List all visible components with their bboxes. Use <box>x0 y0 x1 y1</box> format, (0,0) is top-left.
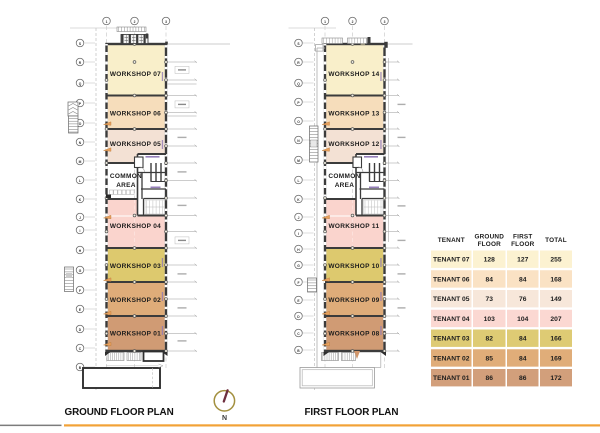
svg-text:GROUND FLOOR PLAN: GROUND FLOOR PLAN <box>65 407 174 418</box>
svg-text:3: 3 <box>384 20 386 24</box>
svg-text:168: 168 <box>550 276 561 283</box>
svg-text:172: 172 <box>550 375 561 382</box>
svg-text:1: 1 <box>106 20 108 24</box>
svg-text:FLOOR: FLOOR <box>511 241 535 248</box>
svg-text:WORKSHOP 07: WORKSHOP 07 <box>110 71 161 78</box>
svg-text:Q: Q <box>79 82 82 86</box>
svg-text:WORKSHOP 08: WORKSHOP 08 <box>328 331 379 338</box>
svg-text:M: M <box>79 160 82 164</box>
svg-text:TENANT 02: TENANT 02 <box>433 355 470 362</box>
svg-text:103: 103 <box>484 316 495 323</box>
svg-text:2: 2 <box>134 20 136 24</box>
svg-text:128: 128 <box>484 257 495 264</box>
svg-text:84: 84 <box>519 276 527 283</box>
svg-text:FIRST: FIRST <box>513 234 532 241</box>
svg-text:AREA: AREA <box>116 182 136 189</box>
svg-text:TENANT 07: TENANT 07 <box>433 257 470 264</box>
svg-text:O: O <box>297 120 300 124</box>
svg-text:TENANT 01: TENANT 01 <box>433 375 470 382</box>
svg-text:255: 255 <box>550 257 561 264</box>
svg-text:G: G <box>79 269 82 273</box>
svg-text:L: L <box>297 179 299 183</box>
svg-text:O: O <box>79 122 82 126</box>
svg-text:WORKSHOP 02: WORKSHOP 02 <box>110 297 161 304</box>
svg-text:TENANT 04: TENANT 04 <box>433 316 470 323</box>
svg-text:207: 207 <box>550 316 561 323</box>
svg-text:F: F <box>297 281 299 285</box>
svg-text:WORKSHOP 12: WORKSHOP 12 <box>328 141 379 148</box>
svg-text:L: L <box>79 179 81 183</box>
svg-text:1: 1 <box>324 20 326 24</box>
svg-text:GROUND: GROUND <box>474 234 504 241</box>
svg-text:TENANT 05: TENANT 05 <box>433 296 470 303</box>
svg-text:FLOOR: FLOOR <box>478 241 502 248</box>
svg-text:2: 2 <box>352 20 354 24</box>
svg-text:84: 84 <box>519 355 527 362</box>
svg-text:86: 86 <box>486 375 494 382</box>
svg-text:TENANT: TENANT <box>438 237 465 244</box>
svg-text:82: 82 <box>486 336 494 343</box>
svg-text:WORKSHOP 10: WORKSHOP 10 <box>328 263 379 270</box>
svg-text:104: 104 <box>517 316 528 323</box>
svg-text:84: 84 <box>519 336 527 343</box>
svg-text:Q: Q <box>297 82 300 86</box>
svg-text:WORKSHOP 06: WORKSHOP 06 <box>110 110 161 117</box>
svg-text:166: 166 <box>550 336 561 343</box>
svg-text:WORKSHOP 01: WORKSHOP 01 <box>110 331 161 338</box>
svg-text:169: 169 <box>550 355 561 362</box>
svg-text:TOTAL: TOTAL <box>545 237 567 244</box>
svg-text:G: G <box>297 264 300 268</box>
svg-text:73: 73 <box>486 296 494 303</box>
svg-text:149: 149 <box>550 296 561 303</box>
svg-text:TENANT 06: TENANT 06 <box>433 276 470 283</box>
svg-text:WORKSHOP 05: WORKSHOP 05 <box>110 141 161 148</box>
svg-text:86: 86 <box>519 375 527 382</box>
svg-text:I: I <box>298 232 299 236</box>
svg-text:WORKSHOP 03: WORKSHOP 03 <box>110 263 161 270</box>
svg-text:85: 85 <box>486 355 494 362</box>
svg-text:WORKSHOP 04: WORKSHOP 04 <box>110 223 161 230</box>
svg-text:WORKSHOP 11: WORKSHOP 11 <box>329 223 380 230</box>
svg-text:76: 76 <box>519 296 527 303</box>
svg-text:AREA: AREA <box>335 182 355 189</box>
svg-text:84: 84 <box>486 276 494 283</box>
svg-text:J: J <box>79 216 81 220</box>
svg-text:WORKSHOP 14: WORKSHOP 14 <box>328 71 379 78</box>
svg-text:FIRST FLOOR PLAN: FIRST FLOOR PLAN <box>305 407 399 418</box>
svg-text:J: J <box>298 216 300 220</box>
svg-text:F: F <box>79 289 81 293</box>
svg-text:127: 127 <box>517 257 528 264</box>
svg-text:I: I <box>80 229 81 233</box>
svg-text:N: N <box>222 415 227 422</box>
svg-text:WORKSHOP 09: WORKSHOP 09 <box>328 297 379 304</box>
svg-text:WORKSHOP 13: WORKSHOP 13 <box>328 110 379 117</box>
svg-text:TENANT 03: TENANT 03 <box>433 336 470 343</box>
svg-text:M: M <box>297 159 300 163</box>
svg-text:3: 3 <box>165 20 167 24</box>
